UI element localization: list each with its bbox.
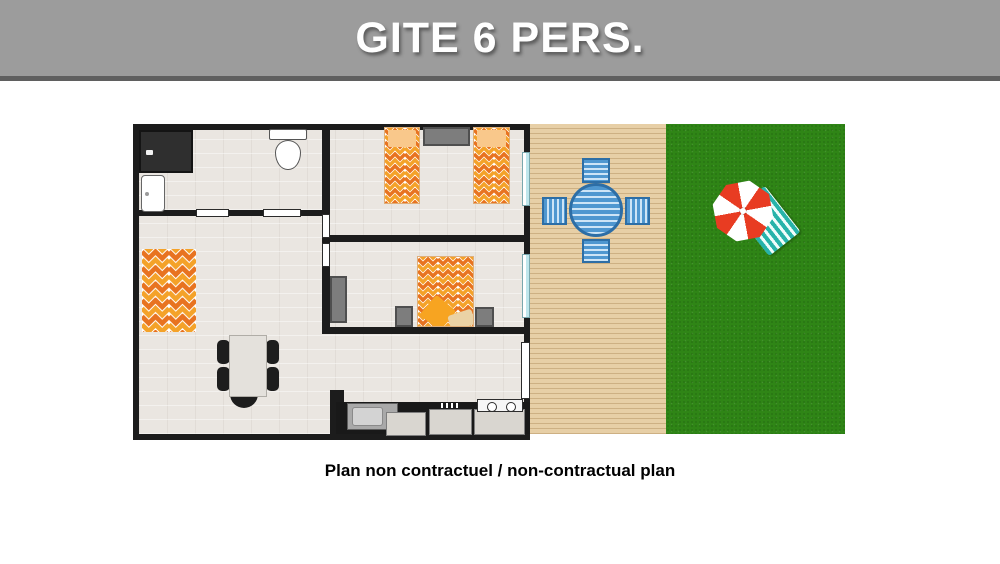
kitchen-cooktop — [477, 399, 523, 412]
burner-icon — [506, 402, 516, 412]
burner-icon — [487, 402, 497, 412]
living-room-rug — [142, 249, 196, 332]
bedroom1-dresser — [423, 127, 470, 146]
deck-door — [521, 342, 530, 399]
kitchen-hob-marks — [441, 403, 461, 408]
toilet-tank — [269, 129, 307, 140]
bedroom1-bed-right — [473, 127, 510, 204]
bathroom-door-left — [196, 209, 229, 217]
patio-chair-left — [542, 197, 567, 225]
wall-bedroom2-bottom — [322, 327, 530, 334]
bathroom-door-right — [263, 209, 301, 217]
bedroom2-door — [322, 243, 330, 267]
bedroom1-door — [322, 214, 330, 238]
bed-pillow — [388, 130, 416, 147]
bed-pillow — [477, 130, 506, 147]
kitchen-cabinet — [474, 409, 525, 435]
bedroom2-double-bed — [417, 256, 474, 327]
sink-basin — [352, 407, 383, 426]
page-title: GITE 6 PERS. — [355, 14, 644, 63]
title-banner: GITE 6 PERS. — [0, 0, 1000, 81]
herringbone-rug-fill — [142, 249, 196, 332]
dining-chair — [266, 340, 279, 364]
bedroom2-wardrobe — [330, 276, 347, 323]
caption: Plan non contractuel / non-contractual p… — [0, 461, 1000, 481]
bedroom1-bed-left — [384, 127, 420, 204]
slide: GITE 6 PERS. — [0, 0, 1000, 564]
dining-chair — [266, 367, 279, 391]
bedroom2-nightstand-right — [475, 307, 494, 327]
kitchen-cabinet — [429, 409, 472, 435]
patio-chair-top — [582, 158, 610, 183]
patio-chair-right — [625, 197, 650, 225]
dining-table — [229, 335, 267, 397]
bedroom1-window — [522, 152, 530, 206]
bedroom2-window — [522, 254, 530, 318]
wall-bedroom-divider — [330, 235, 530, 242]
shower — [139, 130, 193, 173]
patio-chair-bottom — [582, 239, 610, 263]
bedroom2-nightstand-left — [395, 306, 413, 327]
patio-table — [569, 183, 623, 237]
bathroom-sink — [141, 175, 165, 212]
kitchen-cabinet — [386, 412, 426, 436]
garden-lawn — [666, 124, 845, 434]
